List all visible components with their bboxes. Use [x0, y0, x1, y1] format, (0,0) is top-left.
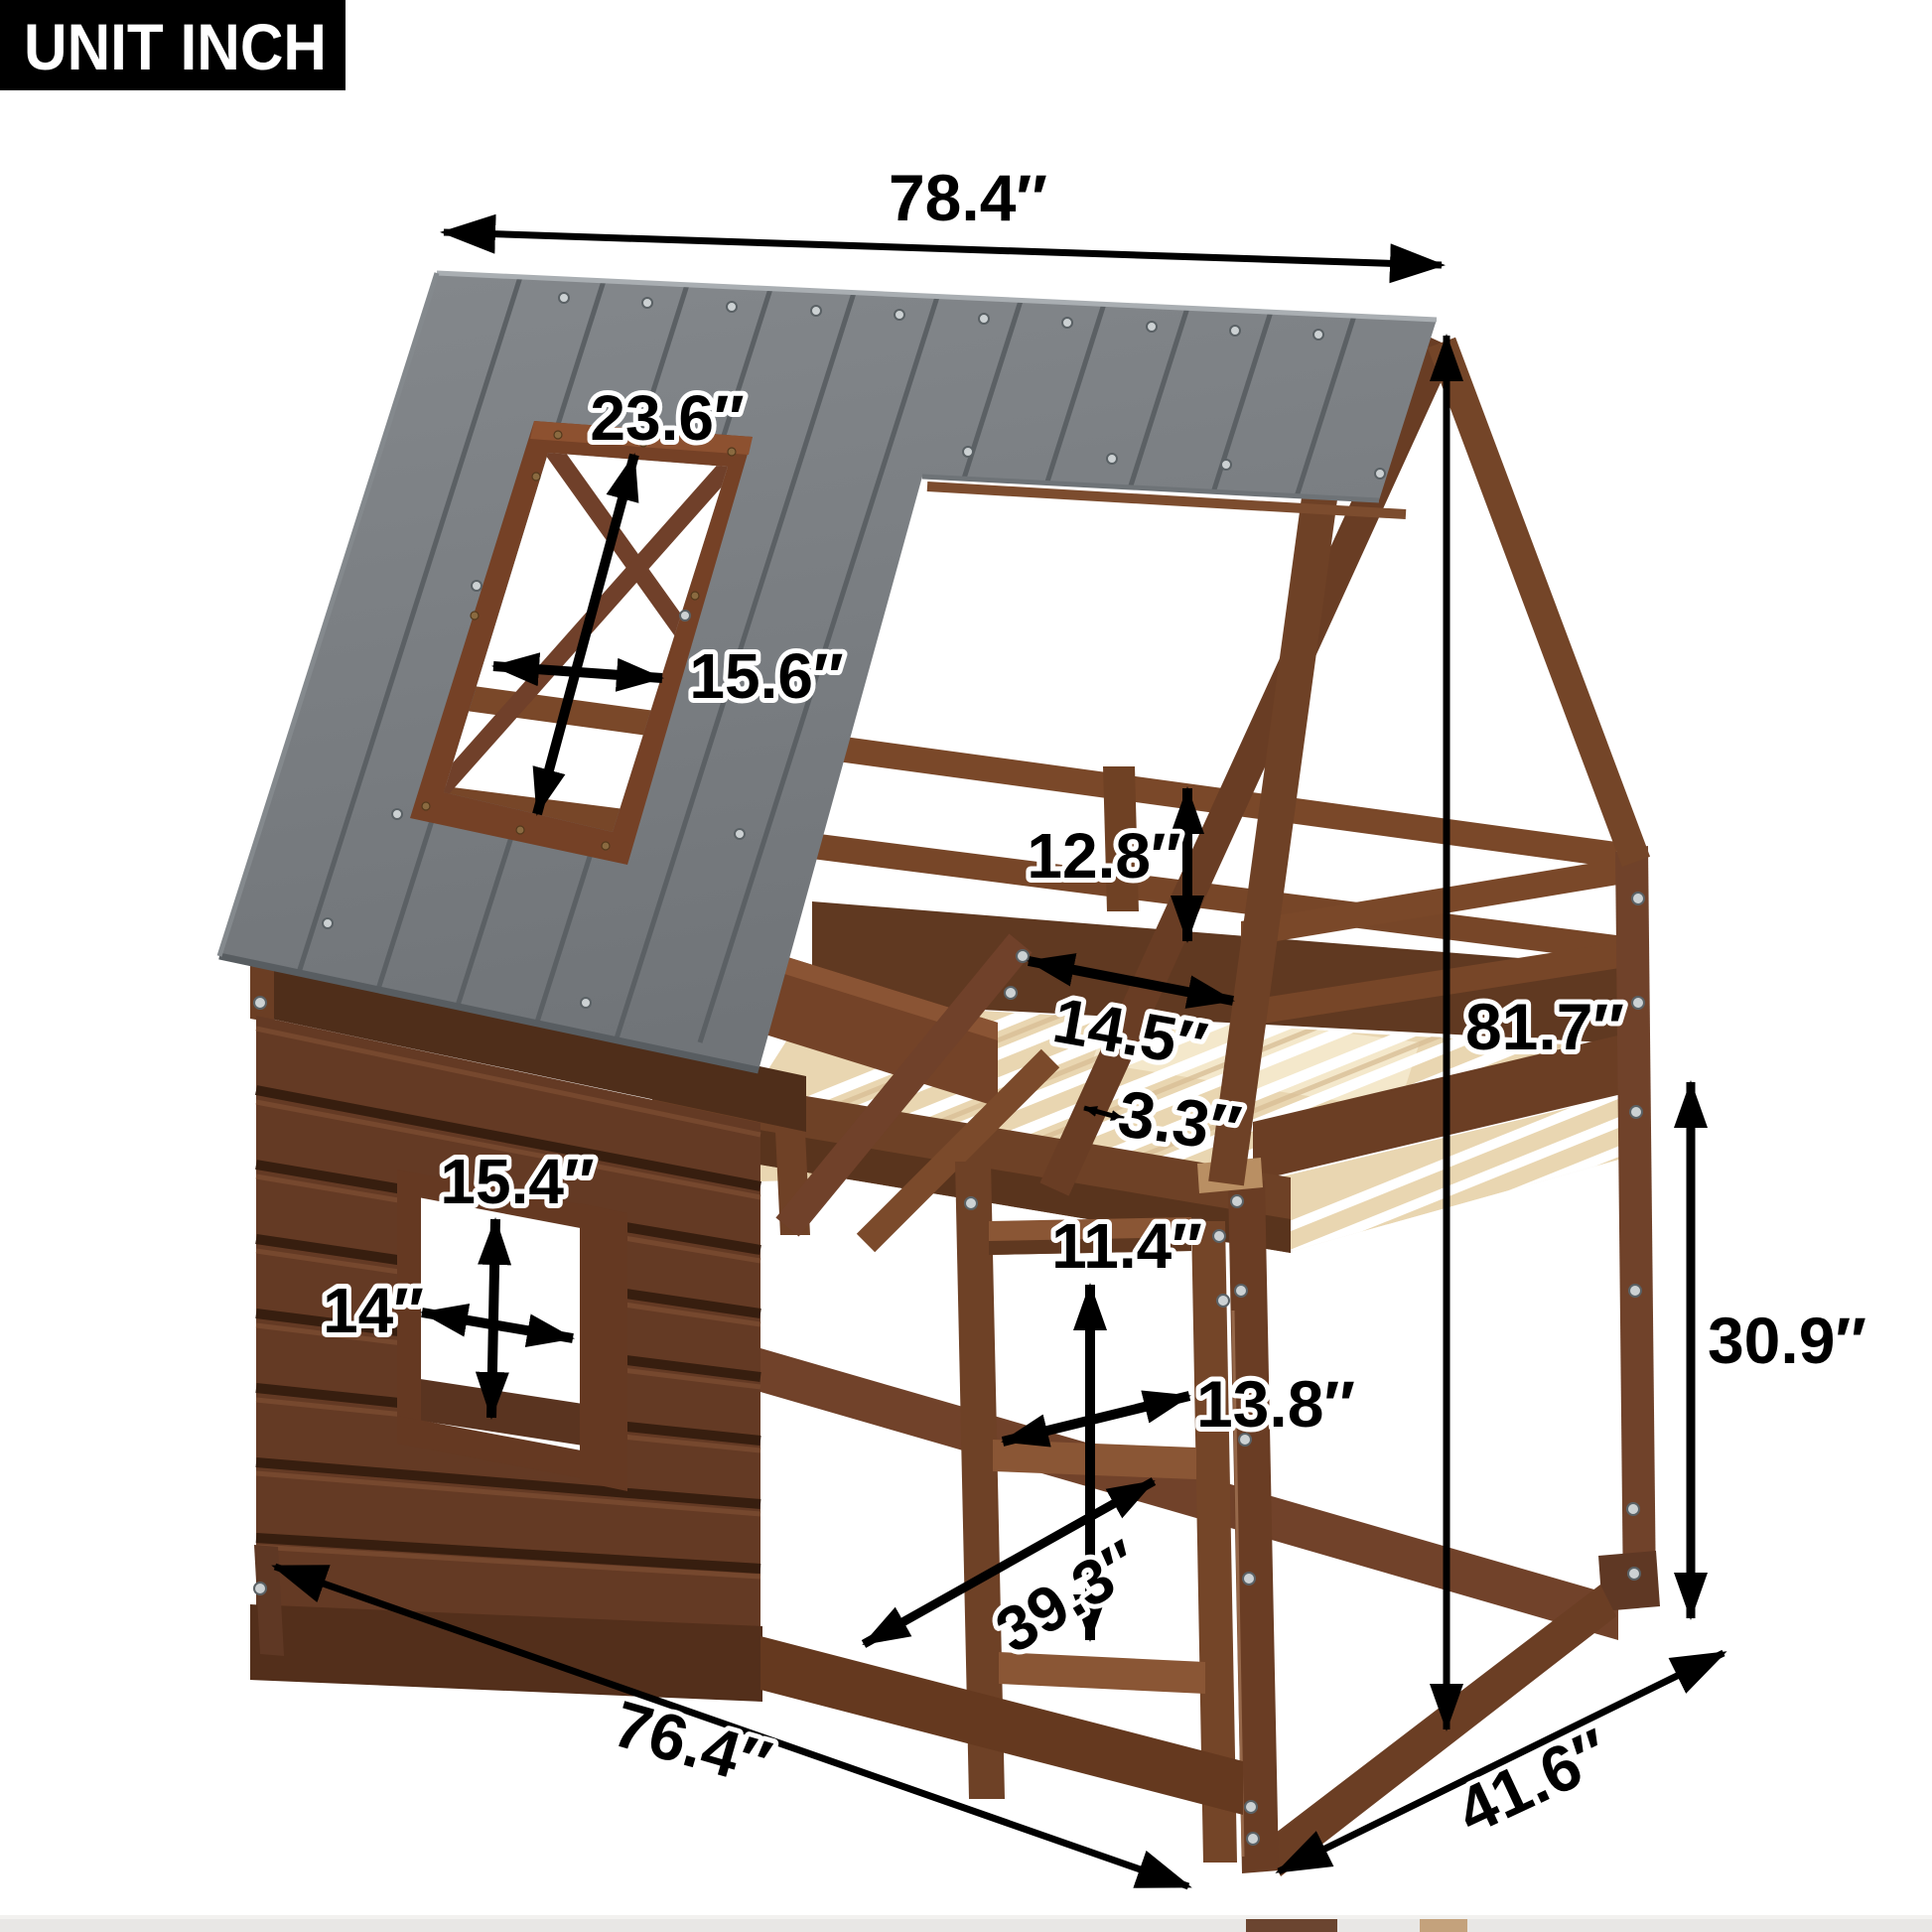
svg-text:13.8″: 13.8″: [1196, 1367, 1355, 1441]
svg-text:15.4″: 15.4″: [440, 1146, 594, 1217]
svg-text:23.6″: 23.6″: [590, 382, 744, 454]
svg-text:11.4″: 11.4″: [1051, 1210, 1202, 1282]
svg-text:15.6″: 15.6″: [689, 640, 843, 712]
svg-text:14″: 14″: [323, 1275, 424, 1346]
svg-text:UNIT INCH: UNIT INCH: [24, 10, 327, 83]
svg-text:78.4″: 78.4″: [889, 161, 1047, 234]
svg-text:30.9″: 30.9″: [1708, 1304, 1866, 1377]
svg-text:12.8″: 12.8″: [1027, 820, 1180, 892]
svg-text:81.7″: 81.7″: [1465, 990, 1624, 1063]
